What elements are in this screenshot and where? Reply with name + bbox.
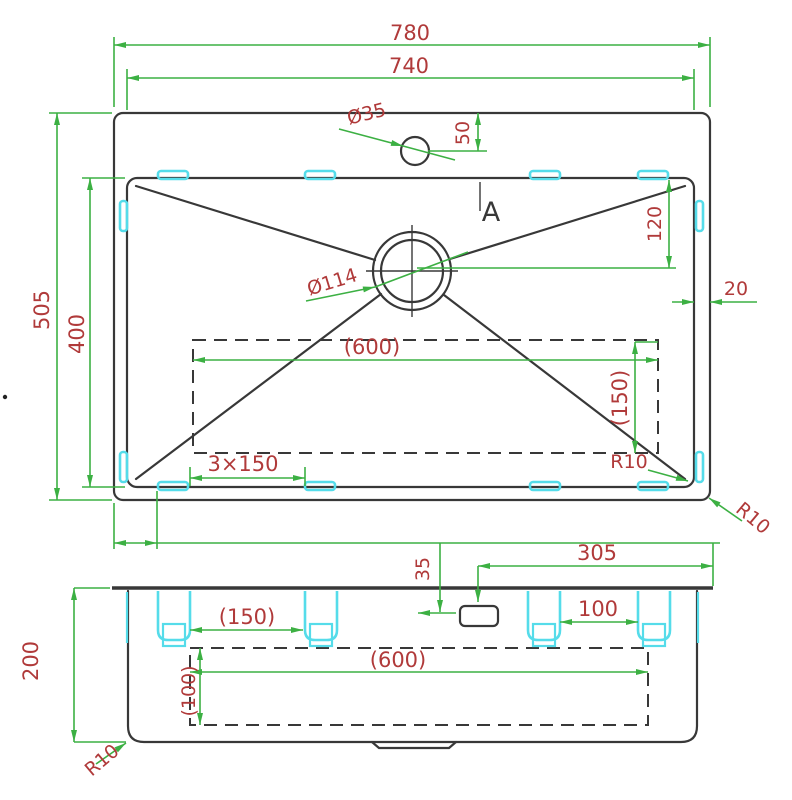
dim-cutout-width: (600)	[344, 335, 400, 359]
dim-drain-to-right-edge: 305	[577, 541, 617, 565]
dim-cutout-depth: (150)	[608, 370, 632, 426]
bowl-crease-top-left	[136, 186, 375, 260]
dim-bowl-height: 200	[19, 641, 43, 681]
front-view: 305 35 (150) 100 (600) (100) 200 R10	[19, 541, 713, 781]
clip-screw-block	[163, 624, 185, 646]
dim-bowl-depth: 400	[65, 314, 89, 354]
top-view: 780 740 Ø35 50 505 400 A 120 20 Ø114 (60…	[30, 21, 774, 586]
bowl-crease-bottom-right	[444, 295, 685, 479]
clip-screw-block	[533, 624, 555, 646]
dim-inner-width: 740	[389, 54, 429, 78]
stray-dot	[3, 395, 7, 399]
clip-tab	[530, 171, 560, 179]
clip-tab-side	[696, 201, 703, 231]
faucet-hole-section	[460, 606, 498, 626]
clip-tab-side	[120, 452, 127, 482]
clip-tab	[638, 171, 668, 179]
dim-faucet-hole-diameter: Ø35	[345, 99, 388, 130]
dim-bowl-corner-radius: R10	[610, 451, 647, 473]
dim-outer-corner-radius: R10	[731, 498, 774, 539]
cutout-dashed-rect	[193, 340, 658, 453]
dim-drain-offset: 120	[644, 206, 666, 242]
clip-screw-block	[310, 624, 332, 646]
dim-clip-pitch: 3×150	[207, 452, 278, 476]
sink-technical-drawing: 780 740 Ø35 50 505 400 A 120 20 Ø114 (60…	[0, 0, 792, 800]
dim-clip-gap-left: (150)	[219, 605, 275, 629]
mounting-clips-top-view	[120, 171, 703, 490]
clip-tab	[305, 171, 335, 179]
dim-rim-width: 20	[724, 278, 748, 300]
dim-clip-gap-right: 100	[578, 597, 618, 621]
dim-cutout-width-front: (600)	[370, 648, 426, 672]
dim-overall-width: 780	[390, 21, 430, 45]
sink-bowl-edge	[127, 178, 694, 487]
dim-faucet-center-drop: 35	[412, 557, 434, 581]
drawing-canvas: 780 740 Ø35 50 505 400 A 120 20 Ø114 (60…	[0, 0, 792, 800]
clip-tab-side	[120, 201, 127, 231]
clip-screw-block	[643, 624, 665, 646]
dim-corner-radius-front: R10	[81, 740, 124, 781]
section-marker-label: A	[482, 197, 501, 228]
clip-tab	[158, 171, 188, 179]
clip-tab-side	[696, 452, 703, 482]
dim-overall-depth: 505	[30, 290, 54, 330]
dim-cutout-depth-front: (100)	[178, 665, 200, 716]
faucet-hole-circle	[401, 137, 429, 165]
top-view-dimensions	[49, 37, 757, 586]
dim-faucet-hole-offset: 50	[452, 121, 474, 145]
